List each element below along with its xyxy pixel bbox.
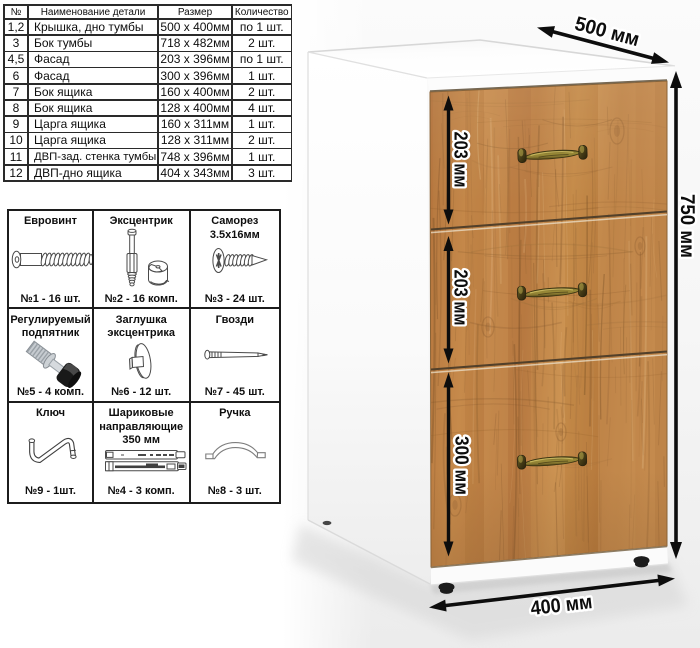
svg-text:203 мм: 203 мм	[450, 270, 471, 326]
svg-text:300 мм: 300 мм	[451, 436, 472, 495]
svg-text:203 мм: 203 мм	[450, 132, 471, 188]
svg-text:750 мм: 750 мм	[676, 194, 698, 258]
